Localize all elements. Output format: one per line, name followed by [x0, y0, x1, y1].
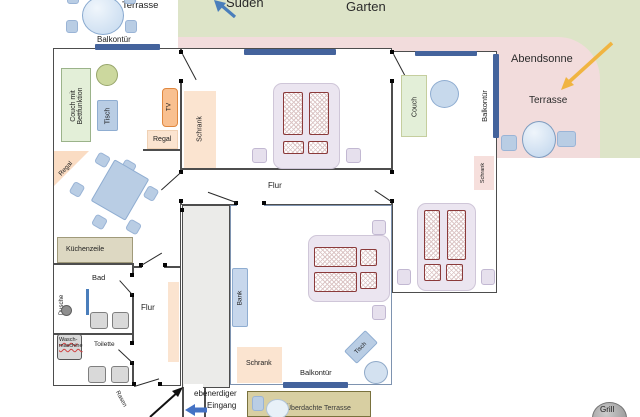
terrace-table	[266, 399, 289, 417]
entrance-arrow-icon	[146, 385, 188, 417]
west-terrace-chair	[501, 135, 517, 151]
grill: Grill	[592, 402, 627, 417]
washing-machine: Wasch- maschine	[57, 334, 82, 360]
pillow	[360, 272, 377, 289]
wardrobe-small-label: Schrank	[481, 163, 487, 183]
plant	[96, 64, 118, 86]
grill-label: Grill	[600, 406, 614, 414]
nightstand	[372, 220, 386, 235]
covered-terrace: Überdachte Terrasse	[247, 391, 371, 417]
wardrobe-label: Schrank	[196, 116, 203, 142]
wall	[53, 263, 133, 265]
wardrobe-label: Schrank	[246, 360, 272, 367]
west-terrace-chair	[557, 131, 576, 147]
toilet-fixture	[88, 366, 106, 383]
west-terrace-table	[522, 121, 556, 158]
terrace-chair	[66, 20, 78, 33]
wardrobe: Schrank	[237, 347, 282, 383]
balcony-door	[415, 51, 477, 56]
terrace-chair	[124, 0, 136, 4]
pillow	[446, 264, 463, 281]
nightstand	[346, 148, 361, 163]
shelf-label: Regal	[153, 136, 171, 143]
pillow	[360, 249, 377, 266]
hallway-label: Flur	[268, 182, 282, 190]
mattress	[447, 210, 466, 260]
terrace-chair	[125, 20, 137, 33]
covered-terrace-label: Überdachte Terrasse	[286, 405, 351, 412]
wardrobe-small: Schrank	[474, 156, 494, 190]
bath-label: Bad	[92, 274, 105, 282]
tv-label: TV	[167, 103, 174, 111]
shower-head	[61, 305, 72, 316]
sofa-bed: Couch mit Bettfunktion	[61, 68, 91, 142]
table-label: Tisch	[354, 341, 368, 355]
sunset-arrow-icon	[558, 36, 618, 94]
round-table	[430, 80, 459, 108]
nightstand	[481, 269, 495, 285]
hall-wardrobe	[168, 282, 179, 362]
balcony-door-label: Balkontür	[481, 90, 489, 122]
floor-plan: Garten Süden Abendsonne Terrasse Terrass…	[0, 0, 640, 417]
nightstand	[252, 148, 267, 163]
terrace-chair	[67, 0, 79, 4]
terrace-chair	[252, 396, 264, 411]
entrance-direction-arrow-icon	[185, 403, 209, 417]
couch: Couch	[401, 75, 427, 137]
coffee-table-label: Tisch	[104, 108, 111, 124]
toilet-fixture	[111, 366, 129, 383]
shower-divider	[86, 289, 89, 315]
lawn-label: Rasen	[114, 390, 128, 408]
garden-label: Garten	[346, 0, 386, 14]
balcony-door-label: Balkontür	[300, 369, 332, 377]
bath-fixture	[90, 312, 108, 329]
balcony-door	[283, 382, 348, 388]
tv: TV	[162, 88, 178, 127]
pillow	[283, 141, 304, 154]
couch-label: Couch	[411, 97, 418, 117]
balcony-door	[244, 49, 336, 55]
sofa-bed-label-line1: Couch mit	[70, 90, 77, 122]
entrance-corridor	[182, 205, 230, 388]
pillow	[308, 141, 328, 154]
toilet-label: Toilette	[94, 342, 115, 349]
mattress	[283, 92, 303, 135]
hallway	[181, 169, 392, 205]
chair-round	[364, 361, 388, 384]
mattress	[314, 272, 357, 292]
nightstand	[397, 269, 411, 285]
balcony-door	[493, 54, 499, 138]
kitchenette: Küchenzeile	[57, 237, 133, 263]
sofa-bed-label-line2: Bettfunktion	[77, 88, 84, 125]
left-hall-label: Flur	[141, 304, 155, 312]
mattress	[424, 210, 440, 260]
coffee-table: Tisch	[97, 100, 118, 131]
bath-fixture	[112, 312, 129, 329]
south-arrow-icon	[212, 0, 238, 18]
shelf: Regal	[147, 130, 178, 149]
mattress	[309, 92, 329, 135]
washing-machine-label-line2: maschine	[59, 343, 83, 349]
entrance-label-line1: ebenerdiger	[194, 390, 237, 398]
mattress	[314, 247, 357, 267]
wardrobe: Schrank	[184, 91, 216, 168]
pillow	[424, 264, 441, 281]
west-terrace-label: Terrasse	[529, 96, 567, 107]
bench-label: Bank	[238, 291, 245, 306]
entrance-label-line2: Eingang	[207, 402, 236, 410]
balcony-door	[95, 44, 160, 50]
terrace-table	[82, 0, 124, 35]
kitchenette-label: Küchenzeile	[66, 246, 104, 253]
wall	[143, 149, 181, 151]
bench: Bank	[232, 268, 248, 327]
nightstand	[372, 305, 386, 320]
